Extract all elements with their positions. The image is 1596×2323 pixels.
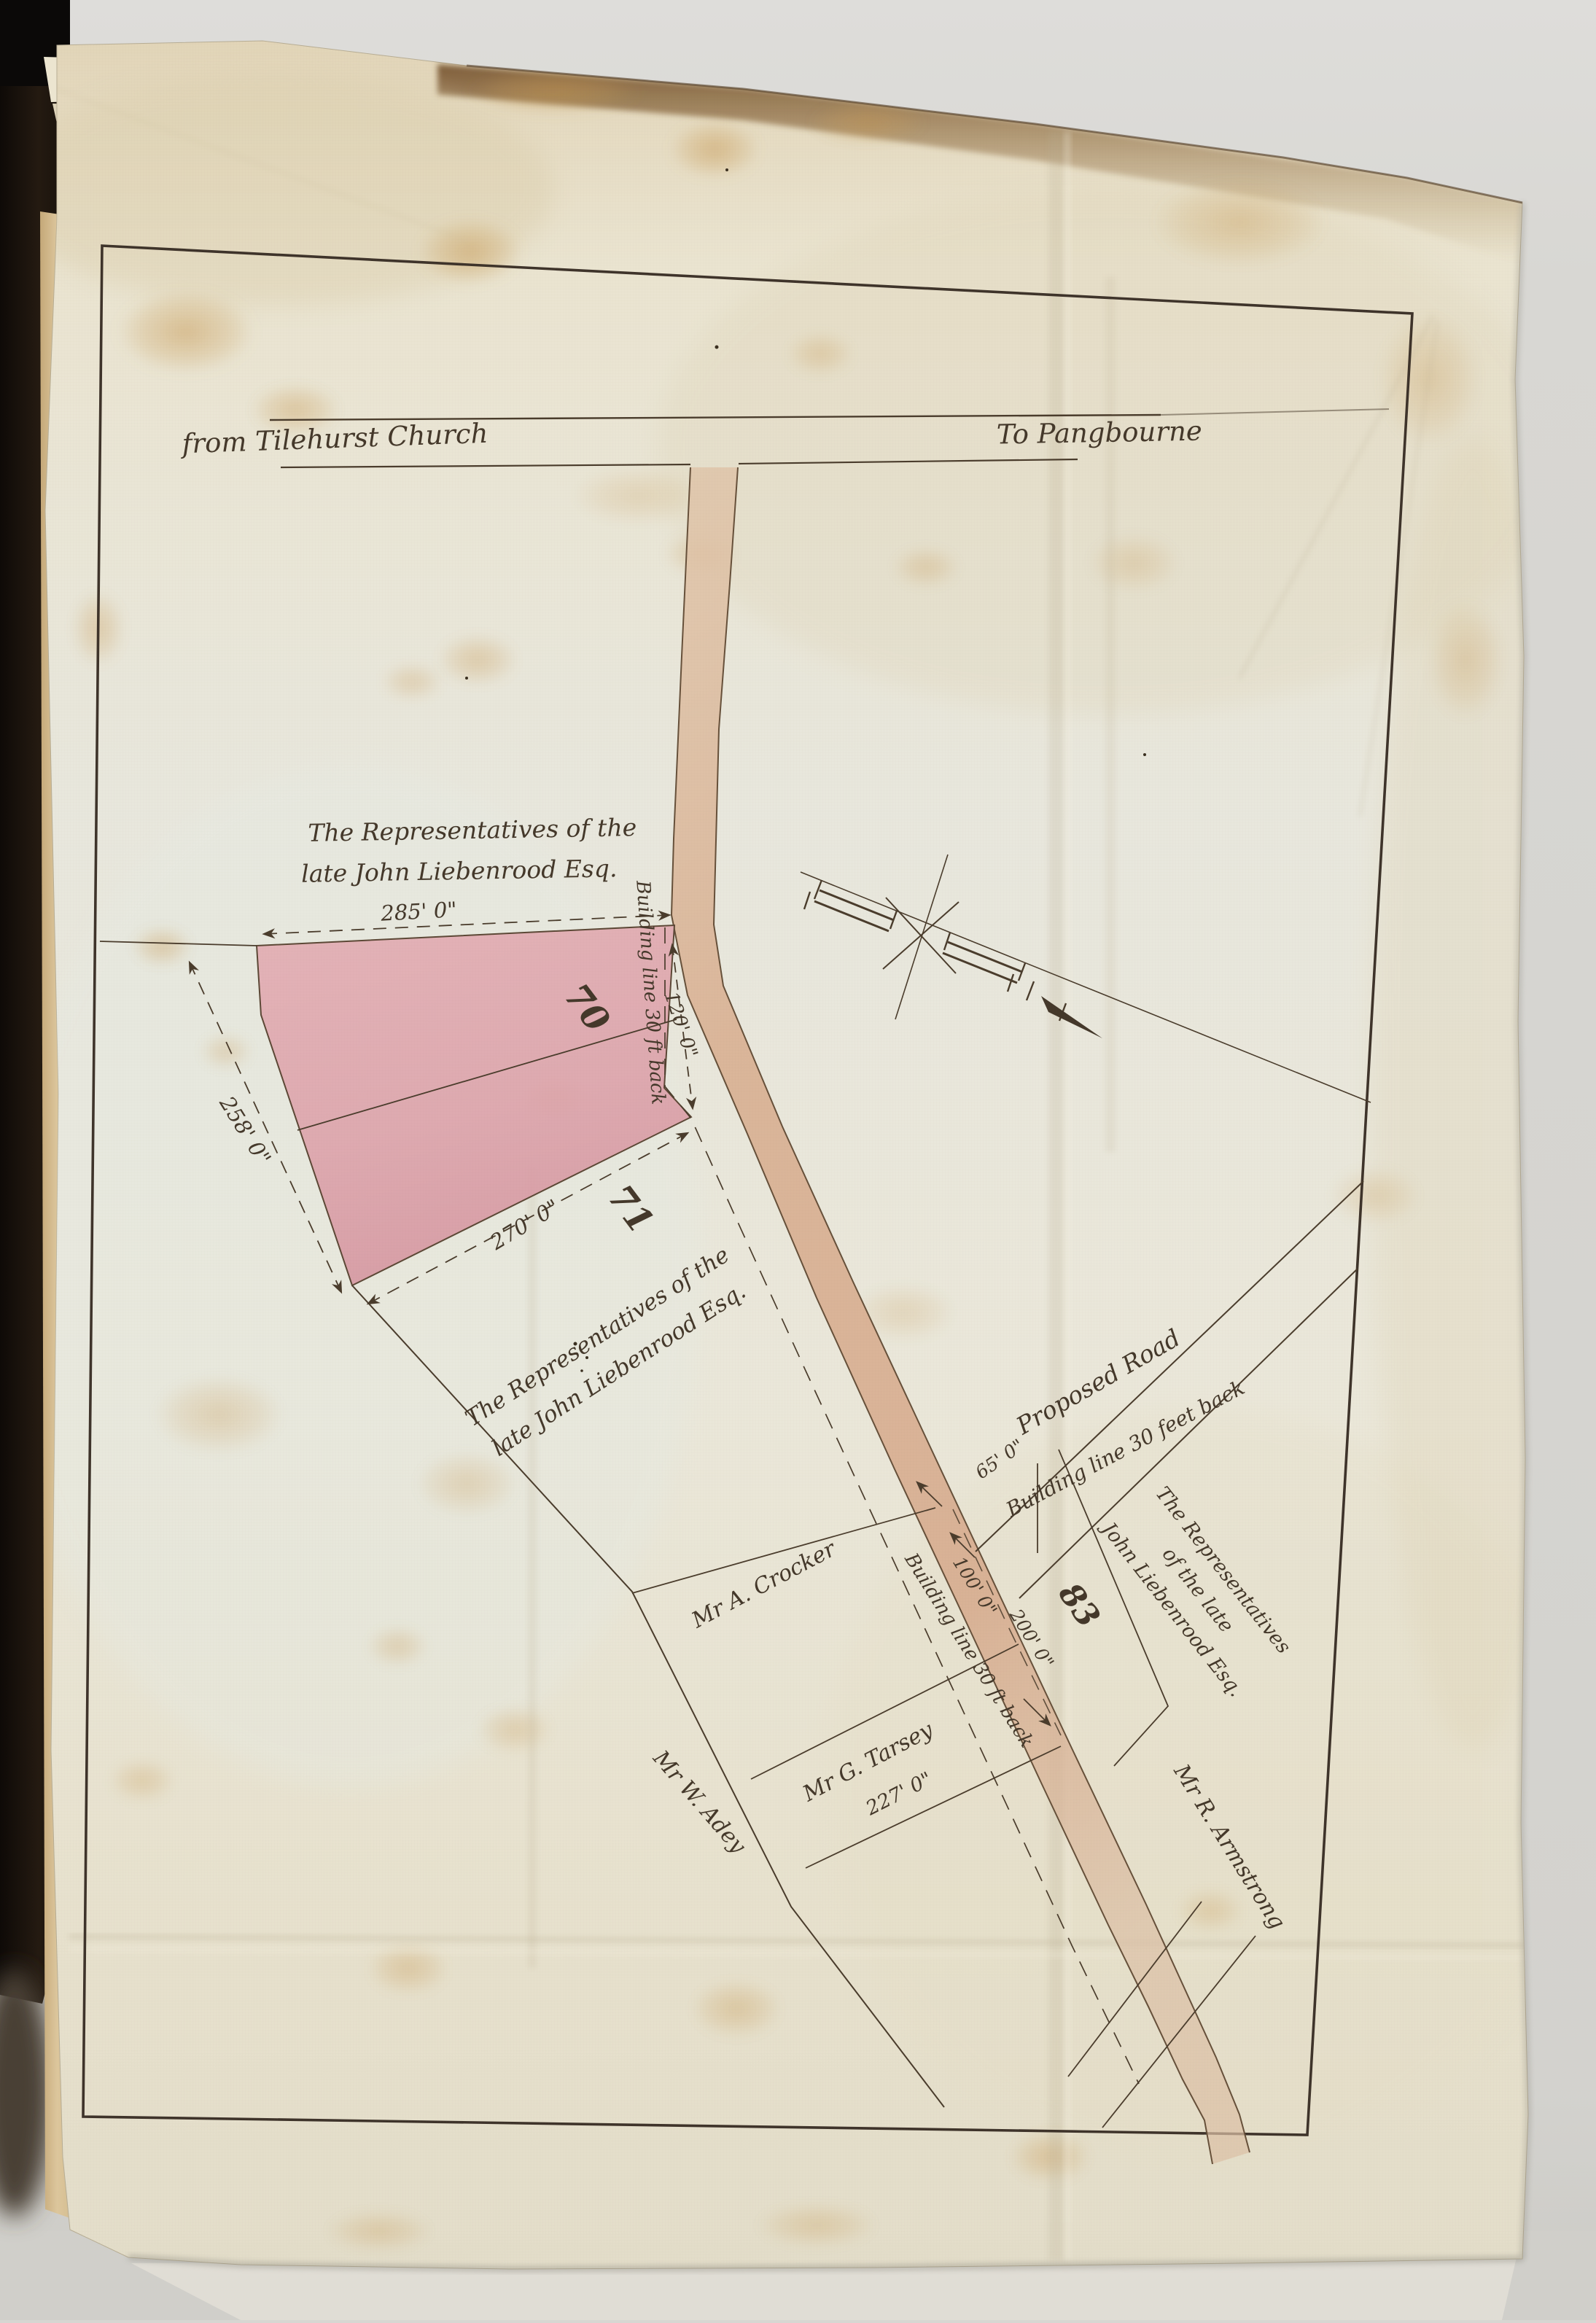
plan-canvas: from Tilehurst Church To Pangbourne The … — [0, 0, 1596, 2320]
scanned-survey-plan: from Tilehurst Church To Pangbourne The … — [0, 0, 1596, 2320]
linen-texture — [44, 36, 1546, 2275]
